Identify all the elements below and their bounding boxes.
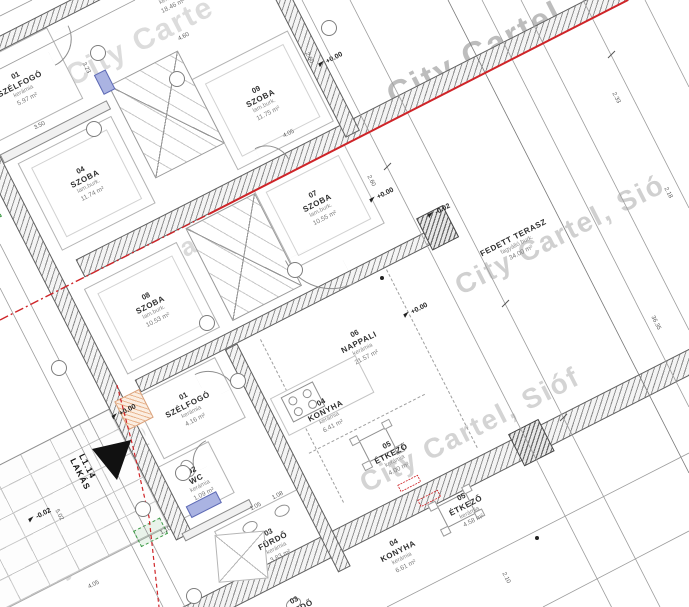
terrace-edge-line [448,0,689,473]
red-annotation-box [398,475,421,491]
opening-marker-bubble [230,373,246,389]
dimension-linework [0,0,689,607]
dimension-chain-line [0,0,32,16]
entrance-arrow-icon [92,440,131,480]
opening-marker-bubble [199,315,215,331]
red-annotation-box [418,490,441,506]
red-axis-line-dashdot [0,214,209,320]
dimension-tick [560,414,567,421]
opening-marker-bubble [175,465,191,481]
dimension-chain-line [645,0,689,87]
red-utility-line-dashed [117,385,159,607]
terrace-edge-line [482,0,689,407]
opening-marker-bubble [86,121,102,137]
dimension-chain-line [0,244,185,607]
dimension-chain-line [0,288,163,607]
opening-marker-bubble [186,588,202,604]
dimension-chain-line [543,531,689,607]
opening-marker-bubble [169,71,185,87]
dimension-chain-line [583,0,689,208]
dimension-chain-line [521,0,689,330]
dimension-tick [502,300,509,307]
dimension-chain-line [387,453,689,607]
red-section-line [209,0,628,214]
reference-dot [535,536,539,540]
opening-marker-bubble [321,20,337,36]
reference-dot [380,276,384,280]
dimension-tick [384,163,391,170]
dimension-tick [608,51,615,58]
opening-marker-bubble [51,360,67,376]
opening-marker-bubble [135,501,151,517]
floorplan-canvas: City Carte City Cartel, Cartel, Siófok C… [0,0,689,607]
opening-marker-bubble [287,262,303,278]
dimension-chain-line [0,0,135,69]
opening-marker-bubble [90,45,106,61]
